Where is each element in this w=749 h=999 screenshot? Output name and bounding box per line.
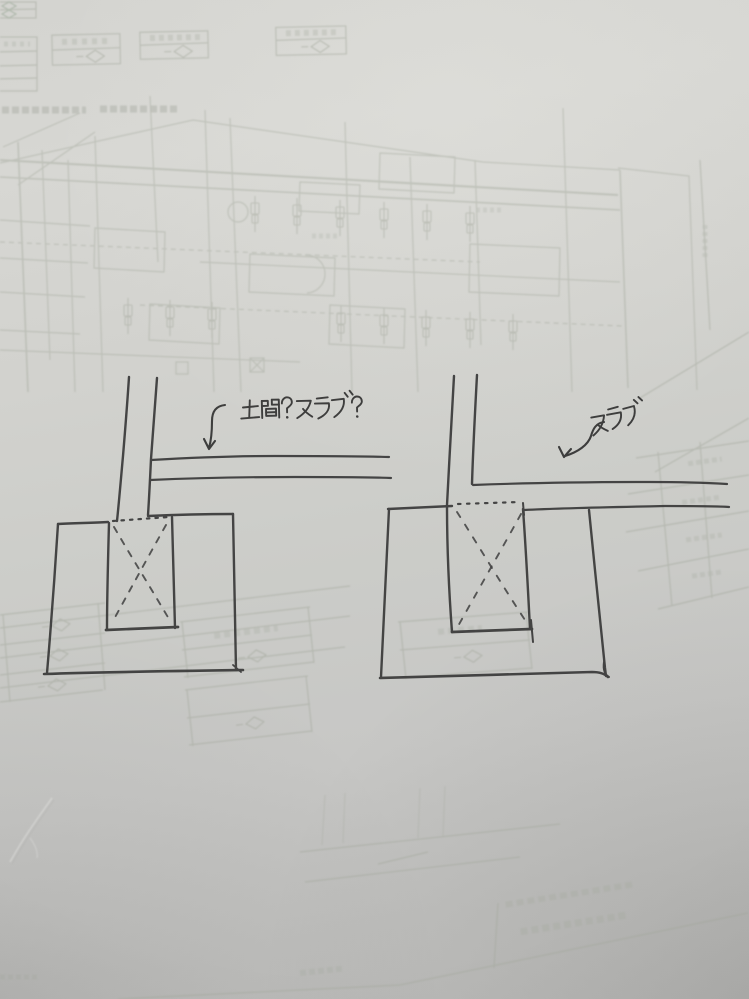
right-slab-bottom-line — [524, 506, 729, 510]
right-column-right-line — [472, 375, 477, 484]
right-footing-bottom — [380, 672, 608, 678]
right-pedestal-right — [523, 509, 530, 629]
left-pile-cross-dashed — [114, 527, 169, 619]
hand-sketch-layer — [0, 0, 749, 999]
right-slab-top-line — [473, 482, 727, 485]
left-slab-top-line — [151, 456, 389, 460]
left-column-left-line — [117, 377, 129, 521]
curved-arrow-down-left-icon — [559, 422, 604, 457]
left-footing-top-right — [148, 514, 233, 516]
left-column-right-line — [148, 378, 157, 515]
photo-of-sketch: 土間？スラブ？ スラブ — [0, 0, 749, 999]
left-footing-left-edge — [47, 524, 58, 673]
right-footing-right-edge — [589, 510, 606, 676]
curved-arrow-down-left-icon — [204, 405, 225, 449]
annotation-right — [559, 397, 647, 457]
right-column-left-line — [447, 376, 454, 632]
annotation-left-text-drawing — [241, 390, 363, 420]
right-footing-top-left — [388, 506, 452, 509]
right-foundation-sketch — [380, 375, 729, 678]
left-footing-right-edge — [233, 514, 236, 670]
left-pedestal-top-dotted — [113, 517, 169, 521]
left-pedestal-right — [172, 517, 175, 628]
annotation-left — [204, 390, 362, 449]
left-footing-top-left — [58, 522, 108, 524]
left-footing-bottom — [44, 670, 243, 674]
right-pedestal-bottom — [452, 629, 532, 632]
annotation-right-text-drawing — [588, 397, 646, 436]
left-slab-bottom-line — [150, 477, 391, 480]
left-pedestal-bottom — [106, 627, 178, 630]
right-footing-left-edge — [381, 509, 389, 677]
right-pile-cross-dashed — [457, 514, 521, 628]
left-pedestal-left — [107, 523, 109, 629]
right-pedestal-top-dotted — [458, 502, 520, 504]
left-foundation-sketch — [44, 377, 391, 674]
